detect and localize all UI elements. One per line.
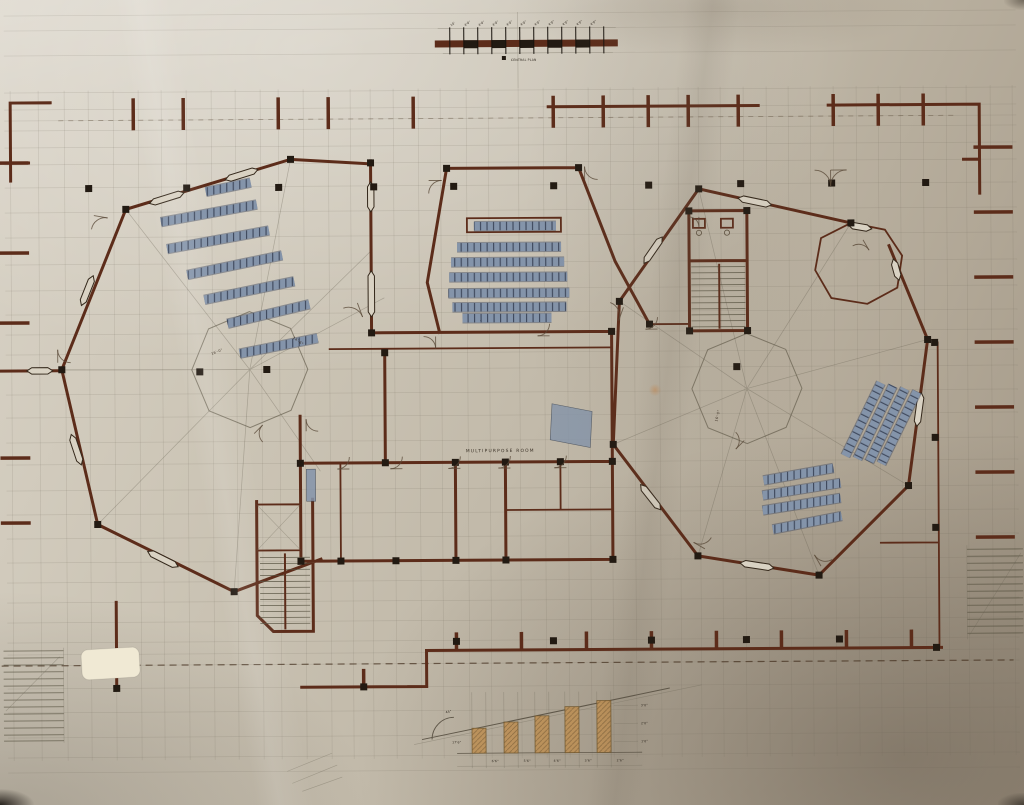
svg-text:4'0": 4'0" (463, 20, 471, 28)
door-arcs (57, 165, 871, 571)
multipurpose-room-label: MULTIPURPOSE ROOM (466, 448, 535, 454)
svg-text:4'0": 4'0" (589, 19, 597, 27)
riser-detail-diagram: 45° 17'6" 6'6" 5'6" 4'6" 3'6" 2'6" 3'0" … (414, 685, 702, 769)
scale-bar: 10'4'0"4'0"4'0"4'0"4'0"4'0"4'0"4'0"4'0"4… (435, 11, 618, 88)
left-classroom-seats (161, 182, 318, 354)
riser-width-label: 2'6" (617, 758, 624, 762)
dashed-lines (0, 115, 1014, 666)
colonnade-piers (0, 93, 1016, 689)
svg-text:4'0": 4'0" (561, 19, 569, 27)
paper-patch (81, 647, 141, 680)
photo-corner-shadow (998, 793, 1024, 805)
svg-text:4'0": 4'0" (505, 19, 513, 27)
riser-width-label: 5'6" (524, 759, 531, 763)
svg-text:4'0": 4'0" (519, 19, 527, 27)
svg-text:4'0": 4'0" (491, 19, 499, 27)
blue-elements (306, 404, 593, 502)
riser-height-label: 3'0" (641, 703, 648, 707)
photo-corner-shadow (0, 789, 34, 805)
riser-height-label: 1'0" (641, 739, 648, 743)
svg-text:4'0": 4'0" (477, 19, 485, 27)
riser-bars (472, 691, 611, 768)
riser-height-label: 2'0" (641, 721, 648, 725)
svg-text:4'0": 4'0" (575, 19, 583, 27)
riser-width-label: 3'6" (585, 759, 592, 763)
floor-plan-drawing: 10'4'0"4'0"4'0"4'0"4'0"4'0"4'0"4'0"4'0"4… (0, 0, 1024, 805)
svg-text:4'0": 4'0" (547, 19, 555, 27)
riser-width-label: 4'6" (554, 759, 561, 763)
riser-width-label: 6'6" (492, 759, 499, 763)
left-corner-stair-sketch (3, 648, 64, 743)
plan-labels: MULTIPURPOSE ROOM 16'-0" 14'-6" 16'-0" (211, 333, 722, 456)
right-lower-seats (762, 468, 841, 529)
photo-corner-shadow (1004, 0, 1024, 10)
riser-angle-label: 45° (445, 709, 452, 714)
floor-plan-photo: 10'4'0"4'0"4'0"4'0"4'0"4'0"4'0"4'0"4'0"4… (0, 0, 1024, 805)
scalebar-pointer (502, 56, 506, 60)
blue-ramp (550, 404, 592, 448)
right-upper-seats (845, 383, 917, 464)
inner-octagons (191, 308, 802, 447)
svg-text:4'0": 4'0" (533, 19, 541, 27)
pencil-scribbles (287, 753, 342, 791)
riser-base-label: 17'6" (452, 740, 462, 744)
pencil-grid (4, 10, 1021, 773)
walls (0, 93, 1016, 689)
blue-door-panel (306, 469, 315, 501)
scalebar-ticks: 10'4'0"4'0"4'0"4'0"4'0"4'0"4'0"4'0"4'0"4… (449, 19, 603, 55)
auditorium-seats (448, 226, 570, 319)
svg-text:10': 10' (449, 21, 456, 27)
scalebar-label: CENTRAL PLAN (511, 58, 537, 62)
right-radial-dimension: 16'-0" (714, 409, 721, 422)
